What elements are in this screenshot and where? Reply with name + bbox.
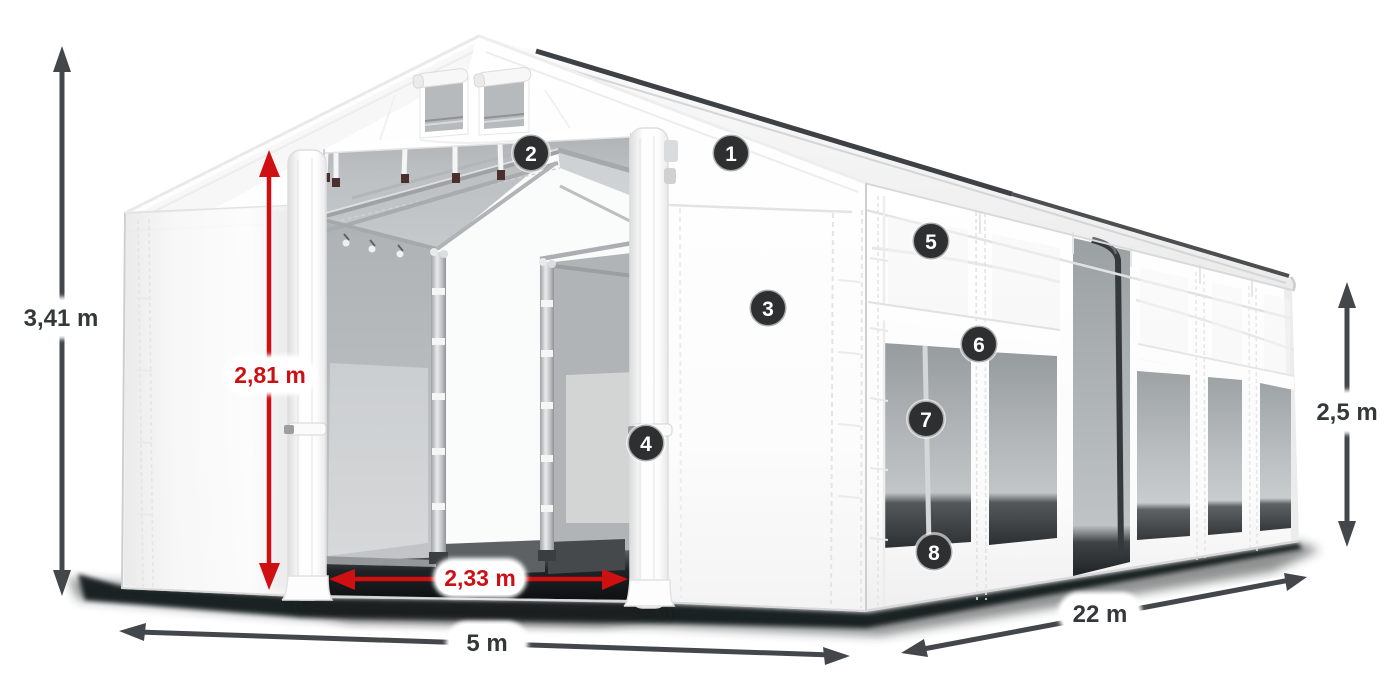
svg-text:5 m: 5 m [466, 630, 507, 657]
svg-text:7: 7 [920, 409, 932, 432]
svg-text:3: 3 [762, 298, 774, 321]
svg-text:5: 5 [925, 231, 937, 254]
svg-text:1: 1 [725, 143, 737, 166]
svg-text:8: 8 [928, 542, 940, 565]
svg-text:22 m: 22 m [1073, 601, 1128, 628]
svg-text:2: 2 [525, 143, 537, 166]
svg-text:2,81 m: 2,81 m [234, 362, 306, 388]
svg-text:4: 4 [640, 433, 652, 456]
svg-text:2,5 m: 2,5 m [1316, 399, 1377, 426]
svg-text:6: 6 [973, 334, 985, 357]
svg-text:3,41 m: 3,41 m [24, 305, 99, 332]
svg-text:2,33 m: 2,33 m [444, 565, 516, 591]
